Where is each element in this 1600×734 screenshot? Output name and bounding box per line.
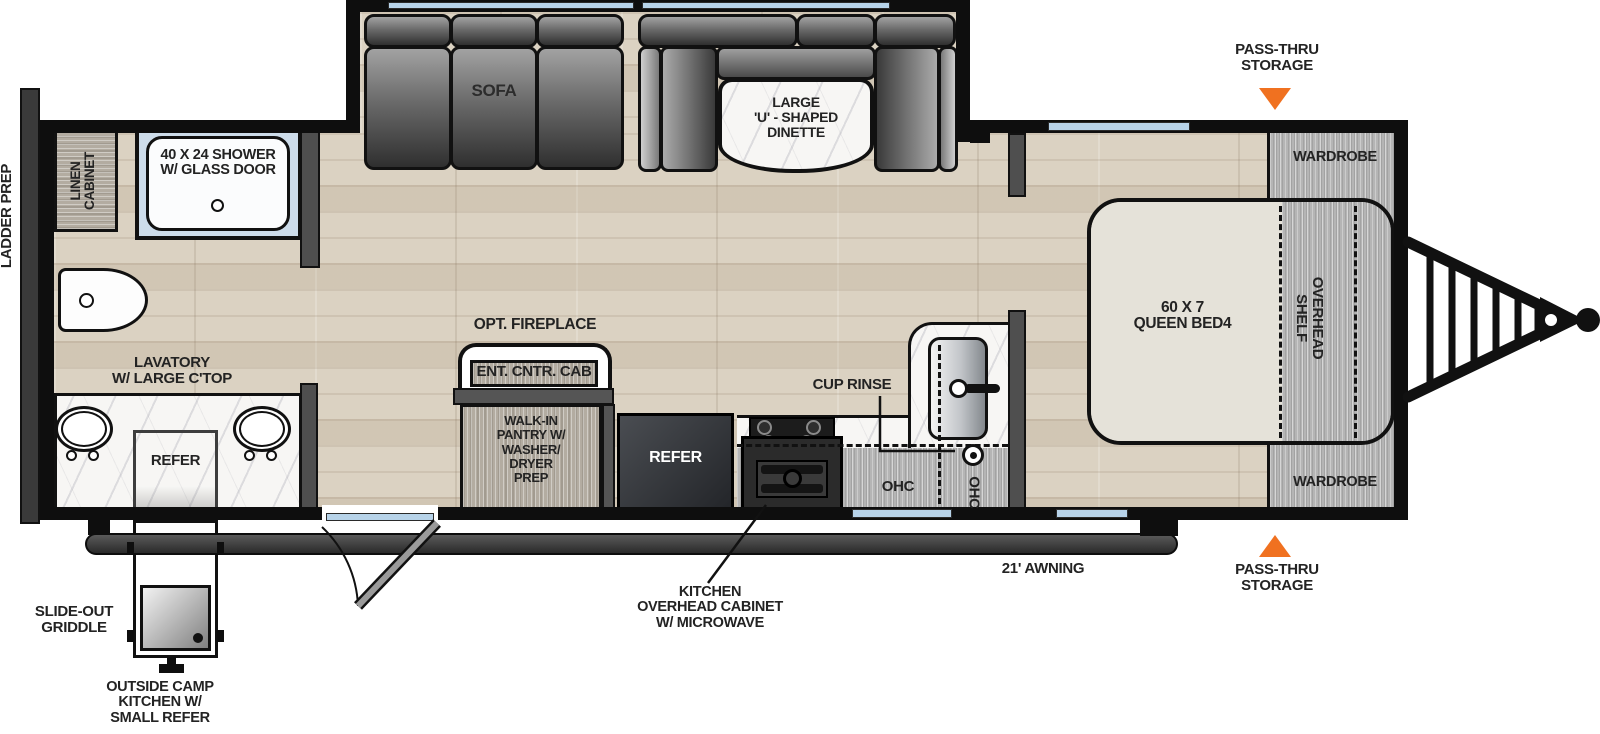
- outside-camp-kitchen-label: OUTSIDE CAMP KITCHEN W/ SMALL REFER: [93, 680, 227, 726]
- dinette-left-armrest: [638, 46, 662, 172]
- pass-thru-top-label: PASS-THRU STORAGE: [1217, 42, 1337, 74]
- pass-thru-bottom-arrow: [1259, 535, 1291, 557]
- lavatory-sink-inner: [239, 411, 285, 447]
- pass-thru-bottom-label: PASS-THRU STORAGE: [1217, 562, 1337, 594]
- wall-step: [970, 133, 990, 143]
- dinette-back-bench: [716, 46, 876, 80]
- camp-kitchen-nub: [217, 630, 224, 642]
- bedroom-wall-top: [1008, 133, 1026, 197]
- burner: [806, 420, 821, 435]
- cup-rinse-fixture-dot: [970, 452, 977, 459]
- shower-drain: [211, 199, 224, 212]
- wardrobe-top-label: WARDROBE: [1283, 150, 1387, 165]
- toilet-flush-button: [79, 293, 94, 308]
- right-wall: [1394, 120, 1408, 520]
- griddle-knob: [193, 633, 203, 643]
- bottom-window: [852, 509, 952, 518]
- floorplan-diagram: LADDER PREP SOFA LARGE 'U' - SHAPED DINE…: [0, 0, 1600, 734]
- faucet-dot: [66, 450, 77, 461]
- bed-dashed-line: [1279, 206, 1282, 438]
- left-wall: [40, 120, 54, 520]
- hitch-tip: [1540, 297, 1585, 342]
- bedroom-wall-bottom: [1008, 310, 1026, 513]
- pantry-top-bar: [453, 388, 614, 405]
- camp-kitchen-nub: [217, 542, 224, 554]
- overhead-shelf-label: OVERHEAD SHELF: [1289, 263, 1325, 373]
- bath-refer-label: REFER: [133, 453, 218, 469]
- hitch-tongue: [1408, 242, 1560, 397]
- ohc-dashed-divider: [938, 345, 941, 513]
- pass-thru-top-arrow: [1259, 88, 1291, 110]
- dinette-back-cushion: [796, 14, 876, 48]
- awning-bar: [85, 533, 1178, 555]
- bath-wall-upper: [300, 128, 320, 268]
- sofa-seat-cushion: [450, 46, 538, 170]
- dinette-right-armrest: [938, 46, 958, 172]
- faucet-dot: [266, 450, 277, 461]
- bath-refer-outline: [133, 430, 218, 512]
- ohc-right-label: OHC: [965, 467, 982, 519]
- dinette-left-bench: [660, 46, 718, 172]
- faucet-dot: [244, 450, 255, 461]
- slideout-window-right: [642, 2, 890, 9]
- entry-door-window: [326, 513, 434, 521]
- shower-label: 40 X 24 SHOWER W/ GLASS DOOR: [140, 148, 296, 179]
- ent-center-cab-label: ENT. CNTR. CAB: [470, 364, 598, 380]
- kitchen-refer-label: REFER: [617, 450, 734, 467]
- sofa-label: SOFA: [454, 82, 534, 100]
- hitch-rungs: [1430, 252, 1538, 387]
- bottom-window: [1056, 509, 1128, 518]
- camp-kitchen-nub: [127, 542, 134, 554]
- kitchen-faucet-handle: [964, 384, 1000, 393]
- sofa-seat-cushion: [364, 46, 452, 170]
- burner: [757, 420, 772, 435]
- faucet-dot: [88, 450, 99, 461]
- ladder-prep-label: LADDER PREP: [0, 136, 21, 296]
- bedroom-top-window: [1048, 122, 1190, 131]
- pantry-side-pillar: [602, 404, 615, 512]
- awning-mount: [1140, 520, 1178, 536]
- sofa-seat-cushion: [536, 46, 624, 170]
- opt-fireplace-label: OPT. FIREPLACE: [455, 317, 615, 333]
- lavatory-sink-inner: [61, 411, 107, 447]
- kitchen-ohc-label: KITCHEN OVERHEAD CABINET W/ MICROWAVE: [625, 585, 795, 631]
- camp-kitchen-handle-bar: [159, 664, 184, 673]
- slideout-window-left: [388, 2, 634, 9]
- dinette-label: LARGE 'U' - SHAPED DINETTE: [726, 95, 866, 139]
- slide-out-griddle-label: SLIDE-OUT GRIDDLE: [18, 604, 130, 636]
- awning-mount: [88, 520, 110, 535]
- sofa-back-cushion: [364, 14, 452, 48]
- dinette-right-bench: [874, 46, 940, 172]
- bed-dashed-line: [1354, 206, 1357, 438]
- dinette-back-cushion: [638, 14, 798, 48]
- ohc-left-label: OHC: [872, 479, 924, 495]
- slideout-left-wall: [346, 0, 360, 133]
- pantry-label: WALK-IN PANTRY W/ WASHER/ DRYER PREP: [462, 414, 600, 485]
- sofa-back-cushion: [536, 14, 624, 48]
- ladder-prep-bar: [20, 88, 40, 524]
- dinette-back-cushion: [874, 14, 956, 48]
- bath-wall-lower: [300, 383, 318, 513]
- bottom-wall: [40, 507, 1408, 520]
- cup-rinse-label: CUP RINSE: [800, 377, 904, 393]
- sofa-back-cushion: [450, 14, 538, 48]
- bed-label: 60 X 7 QUEEN BED4: [1087, 300, 1278, 333]
- linen-cabinet-label: LINEN CABINET: [69, 131, 103, 231]
- kitchen-faucet: [949, 379, 968, 398]
- hitch-jack-circle: [1544, 313, 1558, 327]
- awning-label: 21' AWNING: [985, 561, 1101, 577]
- toilet: [58, 268, 148, 332]
- oven-door-knob: [783, 469, 802, 488]
- hitch-coupler-ball: [1576, 308, 1600, 332]
- wardrobe-bottom-label: WARDROBE: [1283, 475, 1387, 490]
- lavatory-label: LAVATORY W/ LARGE C'TOP: [92, 355, 252, 387]
